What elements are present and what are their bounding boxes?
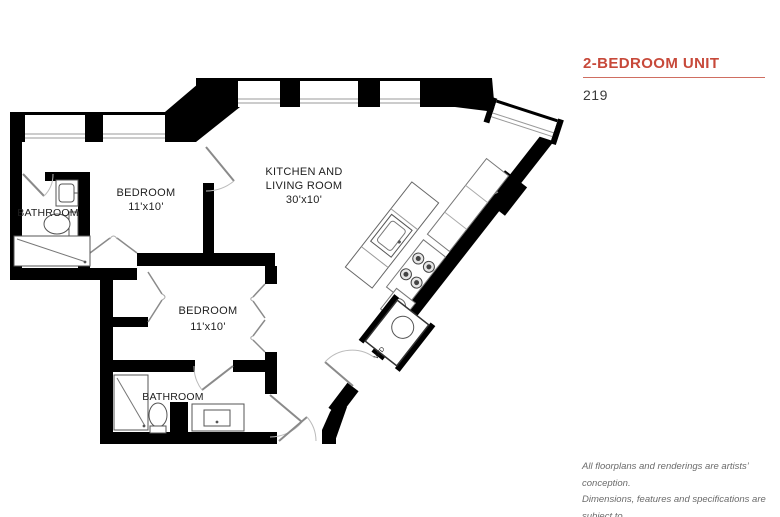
walls [10, 78, 553, 444]
bedroom1-window [103, 115, 165, 142]
entry-door [325, 350, 375, 386]
bedroom1-closet-bifold [90, 236, 137, 253]
bedroom2-dimensions: 11'x10' [190, 321, 225, 333]
vanity-bathroom2 [192, 404, 244, 431]
bedroom1-label: BEDROOM [117, 187, 176, 199]
bedroom1-dimensions: 11'x10' [128, 201, 163, 213]
kitchen-window-2 [300, 81, 358, 107]
sink-bathroom1 [56, 180, 78, 206]
bathroom1-label: BATHROOM [17, 207, 79, 219]
corner-angled-window [484, 97, 564, 145]
bathroom2-label: BATHROOM [142, 391, 204, 403]
kitchen-window-3 [380, 81, 420, 107]
page-title: 2-BEDROOM UNIT [583, 55, 765, 78]
bathroom2-door [194, 366, 233, 390]
bathroom1-window [25, 115, 85, 142]
disclaimer: All floorplans and renderings are artist… [582, 459, 774, 517]
disclaimer-line-1: All floorplans and renderings are artist… [582, 459, 774, 492]
title-block: 2-BEDROOM UNIT 219 [583, 55, 765, 103]
kitchen-label-line1: KITCHEN AND [265, 166, 342, 178]
kitchen-dimensions: 30'x10' [286, 194, 322, 206]
kitchen-window-1 [238, 81, 280, 107]
bedroom2-entry-bifold [251, 284, 265, 352]
hall-door [270, 395, 302, 437]
kitchen-label-line2: LIVING ROOM [266, 180, 343, 192]
bedroom2-closet-bifold [148, 272, 165, 322]
floorplan-page: BATHROOM BEDROOM 11'x10' KITCHEN AND LIV… [0, 0, 780, 517]
bottom-wall-door [279, 417, 316, 441]
unit-number: 219 [583, 87, 765, 103]
bedroom2-label: BEDROOM [179, 305, 238, 317]
tub-bathroom1 [14, 236, 90, 266]
toilet-bathroom2 [149, 403, 167, 433]
disclaimer-line-2: Dimensions, features and specifications … [582, 492, 774, 517]
